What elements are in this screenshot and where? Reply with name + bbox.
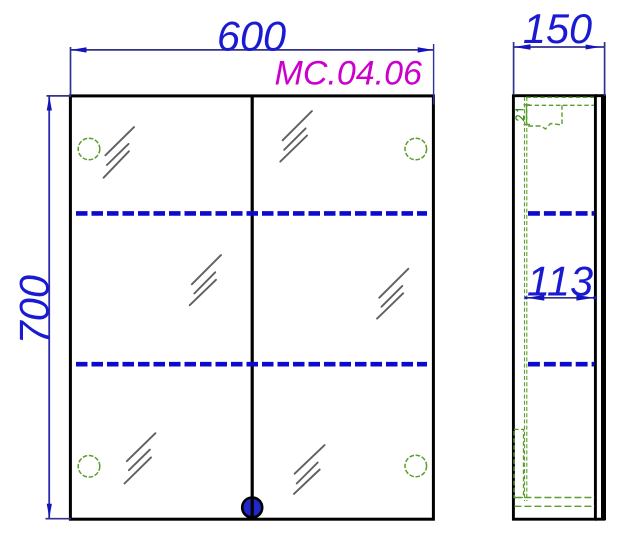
svg-text:150: 150 bbox=[523, 5, 592, 52]
svg-text:113: 113 bbox=[527, 257, 593, 304]
svg-text:700: 700 bbox=[10, 275, 57, 344]
svg-text:600: 600 bbox=[217, 13, 286, 60]
svg-text:МС.04.06: МС.04.06 bbox=[275, 54, 422, 92]
